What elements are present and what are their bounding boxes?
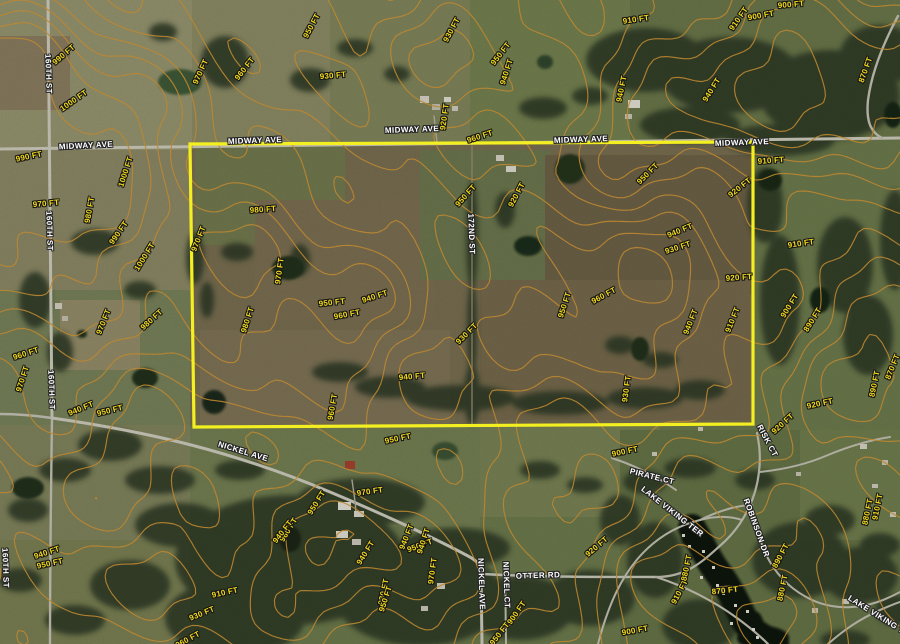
aerial-map bbox=[0, 0, 900, 644]
map-canvas[interactable]: 990 FT1000 FT990 FT1000 FT970 FT980 FT99… bbox=[0, 0, 900, 644]
grain-texture bbox=[0, 0, 900, 644]
